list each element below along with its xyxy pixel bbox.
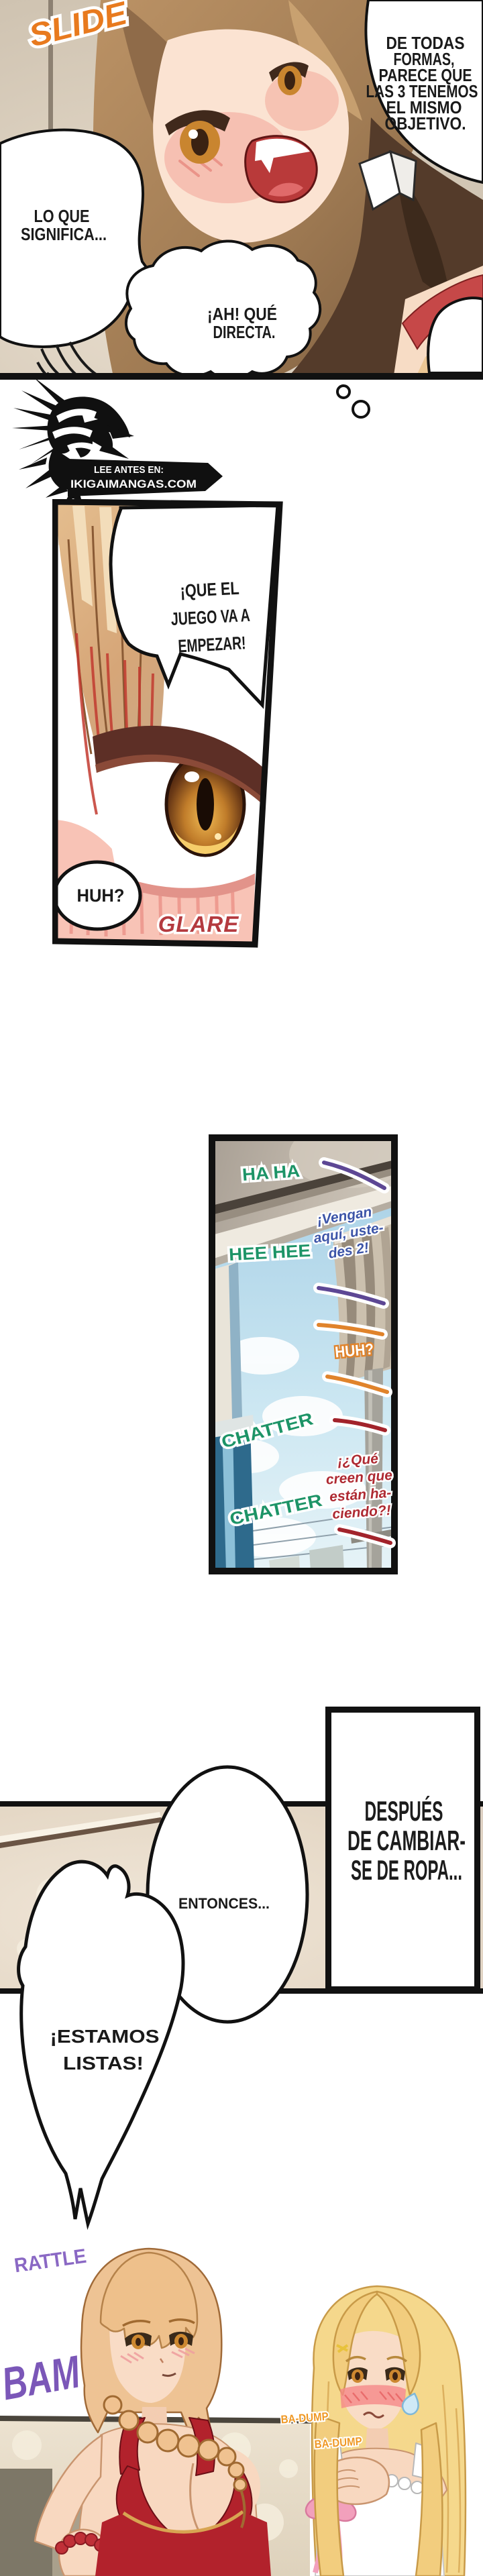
svg-text:EMPEZAR!: EMPEZAR! <box>178 633 246 656</box>
svg-text:SIGNIFICA...: SIGNIFICA... <box>21 224 107 244</box>
svg-text:LO QUE: LO QUE <box>34 206 90 226</box>
svg-text:¡ESTAMOS: ¡ESTAMOS <box>50 2026 160 2047</box>
svg-text:HUH?: HUH? <box>334 1340 374 1361</box>
svg-text:¡¿Qué: ¡¿Qué <box>337 1451 379 1469</box>
svg-text:HA HA: HA HA <box>241 1161 301 1185</box>
svg-text:SE DE ROPA...: SE DE ROPA... <box>351 1854 462 1886</box>
svg-text:ENTONCES...: ENTONCES... <box>178 1895 270 1912</box>
svg-text:JUEGO VA A: JUEGO VA A <box>170 605 250 629</box>
svg-text:DE CAMBIAR-: DE CAMBIAR- <box>347 1825 466 1856</box>
svg-text:IKIGAIMANGAS.COM: IKIGAIMANGAS.COM <box>70 478 197 490</box>
svg-text:DESPUÉS: DESPUÉS <box>365 1795 443 1827</box>
svg-text:LISTAS!: LISTAS! <box>63 2053 144 2074</box>
svg-text:DIRECTA.: DIRECTA. <box>213 322 276 342</box>
svg-text:LEE ANTES EN:: LEE ANTES EN: <box>94 464 164 476</box>
svg-text:HUH?: HUH? <box>77 885 125 906</box>
svg-text:OBJETIVO.: OBJETIVO. <box>385 113 466 133</box>
svg-text:GLARE: GLARE <box>158 912 239 936</box>
svg-text:¡QUE EL: ¡QUE EL <box>180 578 239 602</box>
svg-text:RATTLE: RATTLE <box>13 2245 88 2277</box>
svg-text:HEE HEE: HEE HEE <box>228 1240 311 1265</box>
svg-text:BAM: BAM <box>0 2346 85 2410</box>
svg-text:¡AH! QUÉ: ¡AH! QUÉ <box>207 304 277 324</box>
